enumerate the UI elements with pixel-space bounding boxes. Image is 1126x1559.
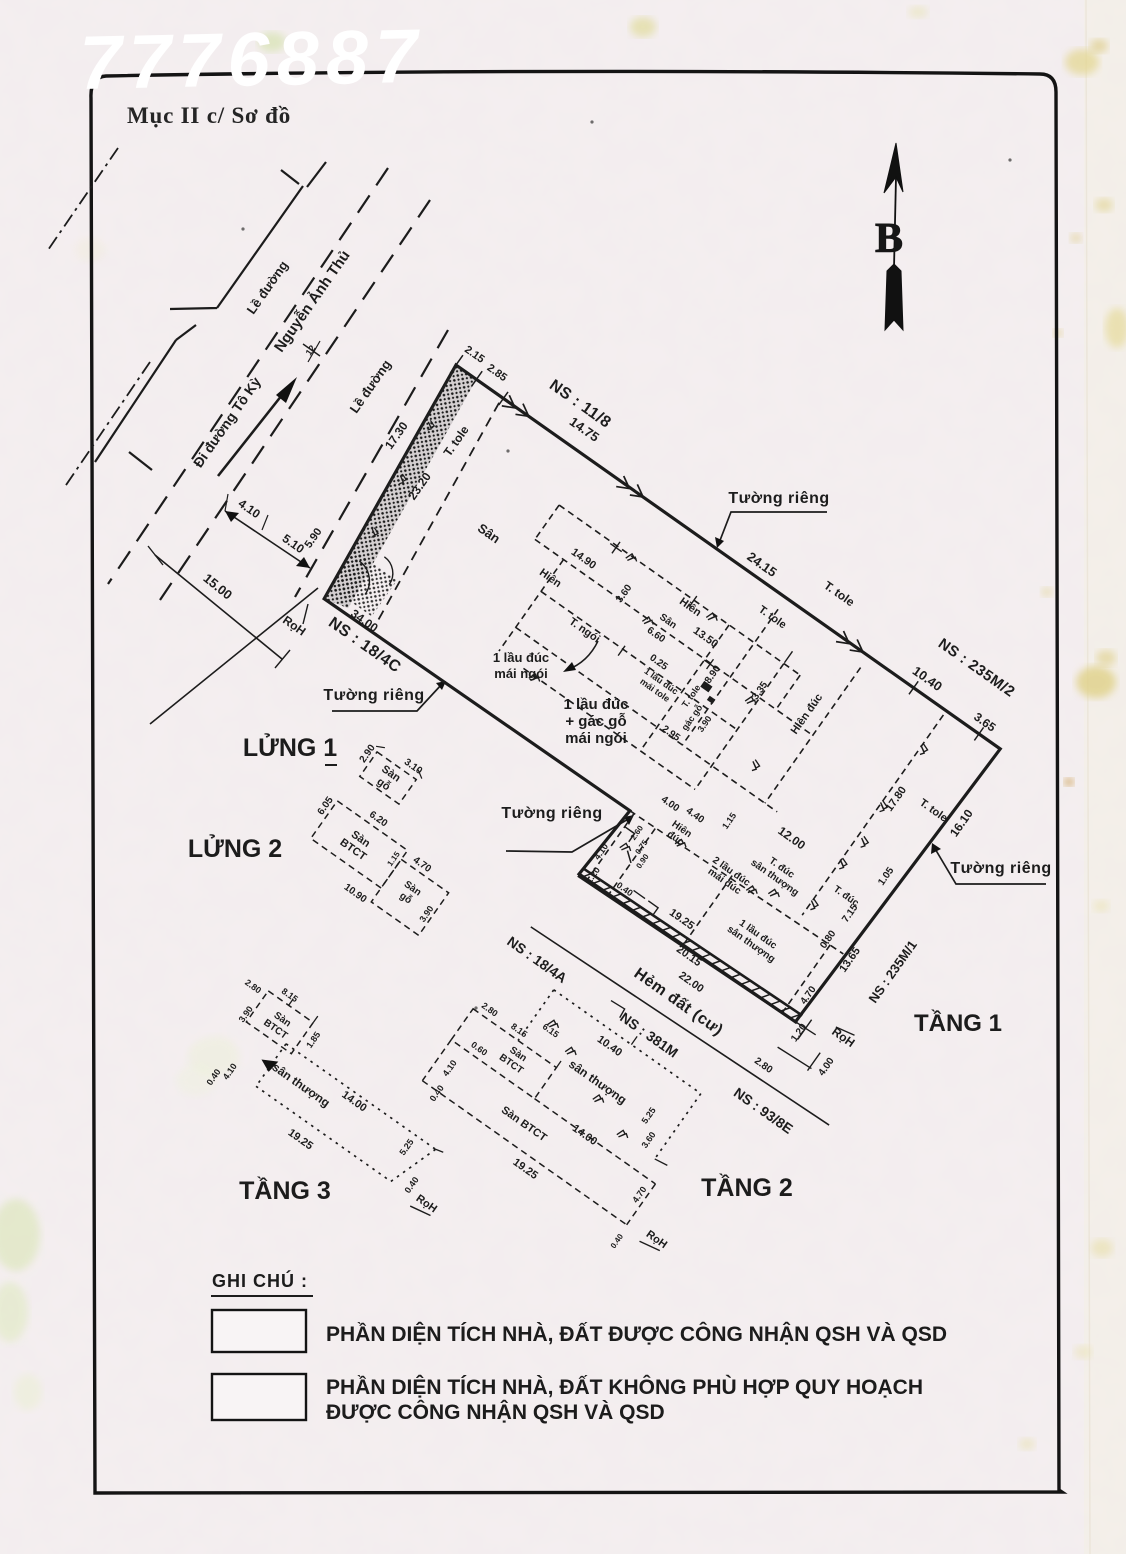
svg-text:Tường riêng: Tường riêng xyxy=(728,490,829,507)
svg-text:1 lầu đúc: 1 lầu đúc xyxy=(563,696,628,713)
svg-text:TẦNG 1: TẦNG 1 xyxy=(914,1009,1002,1037)
svg-text:LỬNG 1: LỬNG 1 xyxy=(243,732,337,762)
svg-text:mái ngói: mái ngói xyxy=(565,730,627,747)
svg-text:LỬNG 2: LỬNG 2 xyxy=(188,833,282,863)
svg-text:PHẦN DIỆN TÍCH NHÀ, ĐẤT ĐƯỢC C: PHẦN DIỆN TÍCH NHÀ, ĐẤT ĐƯỢC CÔNG NHẬN Q… xyxy=(326,1322,947,1346)
svg-text:Tường riêng: Tường riêng xyxy=(950,860,1051,877)
svg-text:PHẦN DIỆN TÍCH NHÀ, ĐẤT KHÔNG: PHẦN DIỆN TÍCH NHÀ, ĐẤT KHÔNG PHÙ HỢP QU… xyxy=(326,1375,923,1399)
svg-text:B: B xyxy=(875,216,903,262)
svg-text:Tường riêng: Tường riêng xyxy=(323,687,424,704)
svg-text:mái ngói: mái ngói xyxy=(494,666,547,681)
svg-text:GHI CHÚ :: GHI CHÚ : xyxy=(212,1270,308,1291)
svg-text:+ gác gỗ: + gác gỗ xyxy=(565,713,626,730)
svg-text:ĐƯỢC CÔNG NHẬN QSH VÀ QSD: ĐƯỢC CÔNG NHẬN QSH VÀ QSD xyxy=(326,1400,665,1424)
svg-text:1 lầu đúc: 1 lầu đúc xyxy=(493,650,549,665)
svg-text:TẦNG 2: TẦNG 2 xyxy=(701,1173,793,1202)
svg-text:Mục II c/ Sơ đồ: Mục II c/ Sơ đồ xyxy=(127,103,291,128)
svg-text:7776887: 7776887 xyxy=(79,14,426,106)
svg-text:TẦNG 3: TẦNG 3 xyxy=(239,1176,331,1205)
svg-text:Tường riêng: Tường riêng xyxy=(501,805,602,822)
